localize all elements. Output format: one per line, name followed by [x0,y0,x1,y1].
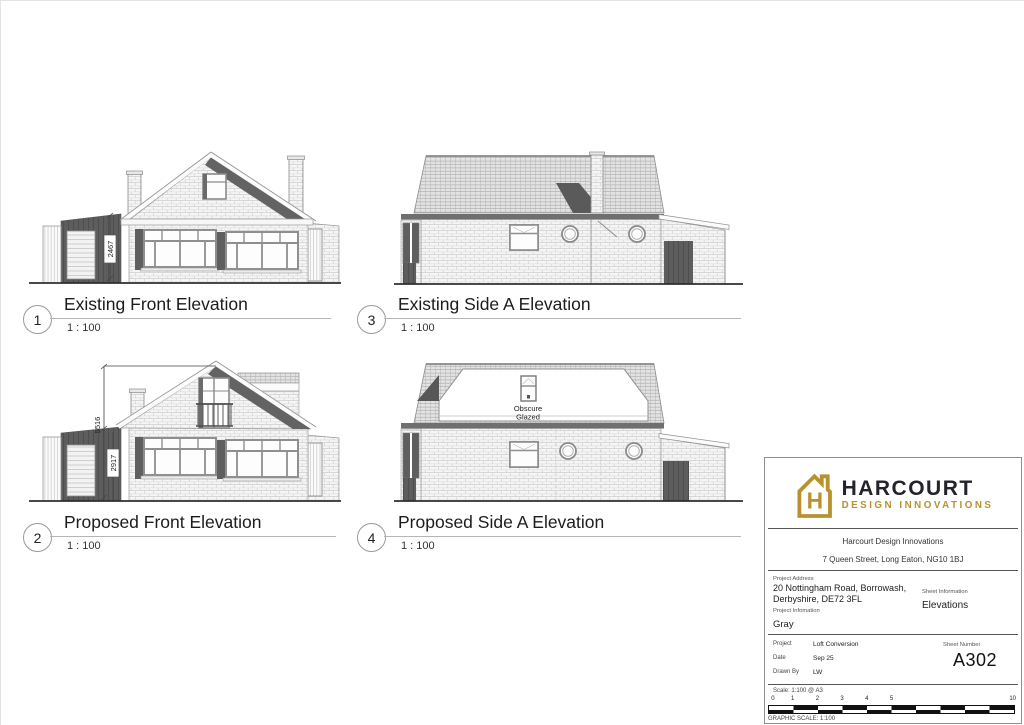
drawn-by-value: LW [813,669,822,676]
proposed-ridge-height-dim: 5516 [93,417,102,434]
tick: 2 [816,696,819,702]
divider [768,634,1018,635]
view-title-rule [384,318,741,319]
proposed-side-window [509,441,539,468]
existing-side-wall [421,220,661,285]
proposed-garage-height-dim: 2917 [109,455,118,472]
view-title-4: Proposed Side A Elevation [398,512,604,533]
proposed-front-right-wing [306,435,339,501]
graphic-scale-bar [768,705,1015,714]
tick: 10 [1009,696,1016,702]
juliet-balcony-doors [196,378,233,428]
sheet-information-label: Sheet Information [922,589,968,595]
tick: 1 [791,696,794,702]
brand-tagline: DESIGN INNOVATIONS [842,501,994,511]
graphic-scale-label: GRAPHIC SCALE: 1:100 [768,716,835,722]
existing-front-windows [135,229,301,273]
title-block: H HARCOURT DESIGN INNOVATIONS Harcourt D… [764,457,1022,724]
view-number-4: 4 [357,523,386,552]
view-scale-4: 1 : 100 [401,540,435,552]
date-value: Sep 25 [813,655,834,662]
company-name: Harcourt Design Innovations [765,537,1021,546]
tick: 4 [865,696,868,702]
view-title-rule [384,536,741,537]
existing-garage-height-dim: 2467 [106,241,115,258]
project-information-label: Project Infomation [773,608,820,614]
proposed-side-porch [401,429,421,501]
brand-name: HARCOURT [842,478,994,500]
project-address-line1: 20 Nottingham Road, Borrowash, [773,583,906,593]
proposed-side-eaves [401,423,664,429]
company-wordmark: HARCOURT DESIGN INNOVATIONS [842,478,994,511]
sheet-number-label: Sheet Number [943,642,980,648]
date-label: Date [773,655,786,661]
project-information-value: Gray [773,619,794,630]
view-scale-2: 1 : 100 [67,540,101,552]
scale-note: Scale: 1:100 @ A3 [773,688,823,694]
drawing-sheet: 2467 [0,0,1024,725]
drawn-by-label: Drawn By [773,669,799,675]
divider [768,570,1018,571]
proposed-side-a-elevation-drawing: Obscure Glazed [351,353,751,505]
divider [768,684,1018,685]
proposed-side-porthole-1 [560,443,576,459]
existing-front-eaves [121,219,313,225]
scale-bar-ticks: 0 1 2 3 4 5 10 [768,696,1015,704]
tick: 5 [890,696,893,702]
project-address-line2: Derbyshire, DE72 3FL [773,594,862,604]
view-label-3: 3 Existing Side A Elevation 1 : 100 [357,294,741,340]
view-title-1: Existing Front Elevation [64,294,248,315]
scale-bar-bottom-row [769,710,1014,714]
company-address: 7 Queen Street, Long Eaton, NG10 1BJ [765,555,1021,564]
harcourt-house-icon: H [793,470,835,520]
view-number-3: 3 [357,305,386,334]
company-logo: H HARCOURT DESIGN INNOVATIONS [765,466,1021,524]
existing-side-porthole-2 [629,226,645,242]
existing-side-porch [401,220,421,284]
proposed-front-elevation-drawing: 5516 2917 [21,353,346,505]
view-scale-1: 1 : 100 [67,322,101,334]
proposed-side-porthole-2 [626,443,642,459]
view-number-1: 1 [23,305,52,334]
view-label-4: 4 Proposed Side A Elevation 1 : 100 [357,512,741,558]
existing-side-lean-to [659,215,729,285]
proposed-side-wall [421,429,661,502]
existing-side-a-elevation-drawing [351,141,751,293]
tick: 3 [840,696,843,702]
view-scale-3: 1 : 100 [401,322,435,334]
project-address-label: Project Address [773,576,814,582]
existing-side-roof [414,152,664,213]
obscure-glazed-label-line2: Glazed [516,413,540,422]
project-value: Loft Conversion [813,641,859,648]
view-label-2: 2 Proposed Front Elevation 1 : 100 [23,512,336,558]
existing-side-eaves [401,214,664,220]
proposed-side-lean-to [659,434,729,502]
proposed-front-windows [135,437,301,481]
view-number-2: 2 [23,523,52,552]
view-title-rule [50,318,331,319]
existing-front-gable [120,152,316,223]
view-title-3: Existing Side A Elevation [398,294,591,315]
sheet-number-value: A302 [935,650,1015,671]
view-label-1: 1 Existing Front Elevation 1 : 100 [23,294,331,340]
sheet-information-value: Elevations [922,600,968,611]
tick: 0 [771,696,774,702]
existing-front-elevation-drawing: 2467 [21,141,346,293]
view-title-rule [50,536,336,537]
existing-front-right-wing [306,223,339,283]
existing-side-porthole-1 [562,226,578,242]
divider [768,528,1018,529]
existing-side-window [509,224,539,251]
svg-text:H: H [806,488,822,514]
view-title-2: Proposed Front Elevation [64,512,261,533]
project-label: Project [773,641,792,647]
